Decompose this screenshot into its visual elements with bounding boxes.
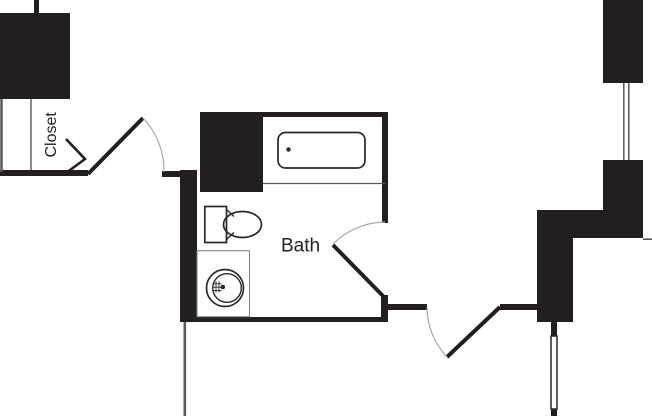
wall-closet-block xyxy=(0,13,70,99)
wall-top-right-block xyxy=(603,0,643,83)
wall-top-edge-stub xyxy=(34,0,39,14)
wall-bath-top xyxy=(200,112,388,117)
bath-door-arc xyxy=(333,222,385,244)
floor-plan: Bath Closet xyxy=(0,0,652,416)
bath-door-leaf xyxy=(333,245,385,298)
closet-door-arc xyxy=(143,118,164,172)
tub-drain-icon xyxy=(286,147,290,151)
bath-room-label: Bath xyxy=(281,236,320,257)
wall-right-column-upper xyxy=(603,160,643,211)
closet-door-leaf xyxy=(88,118,143,174)
faucet-icon xyxy=(214,282,222,293)
walls xyxy=(0,0,643,416)
wall-window-stub-top xyxy=(551,322,557,336)
sink-inner-icon xyxy=(213,274,242,303)
window-icon xyxy=(551,336,557,409)
wall-hall-stub-left xyxy=(385,304,427,310)
wall-closet-bottom xyxy=(0,170,88,176)
hall-door-arc xyxy=(427,307,447,357)
wall-bath-left xyxy=(180,170,197,322)
wall-window-stub-bottom xyxy=(551,409,557,416)
wall-right-horizontal-bar xyxy=(537,210,643,238)
toilet-bowl-icon xyxy=(224,212,262,238)
wall-hall-stub-right xyxy=(500,304,538,310)
closet-room-label: Closet xyxy=(43,112,60,158)
bathtub-icon xyxy=(278,133,365,169)
wall-bath-pier-block xyxy=(200,112,263,192)
wall-right-column-lower xyxy=(537,238,573,322)
closet-bifold-chevron xyxy=(66,139,85,173)
sink-drain-icon xyxy=(221,285,226,290)
hall-door-leaf xyxy=(447,307,500,357)
wall-bath-right xyxy=(382,112,388,223)
wall-bath-bottom xyxy=(180,317,388,322)
